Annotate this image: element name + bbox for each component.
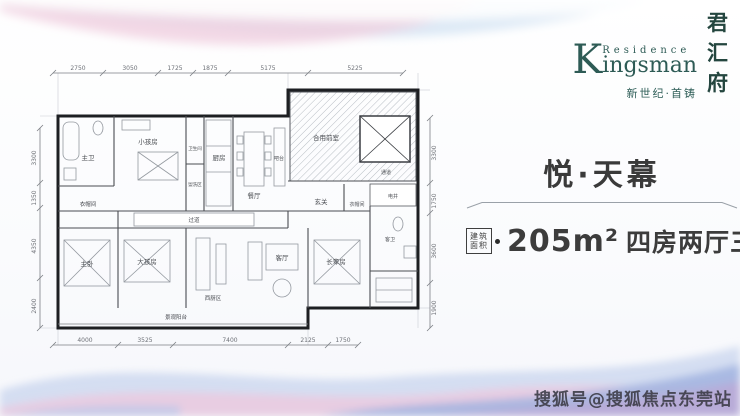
toilet-icon	[93, 121, 103, 135]
area-badge-line2: 面积	[470, 241, 488, 250]
rug-icon	[273, 279, 291, 297]
rooms-description: 四房两厅三卫	[626, 223, 740, 259]
room-label-kids-room: 小孩房	[138, 137, 158, 146]
brand-logo: K Residence ingsman 新世纪·首铸 君 汇 府	[572, 8, 728, 101]
brand-kanji-2: 汇	[707, 42, 728, 63]
dim-left-4: 2400	[31, 298, 38, 313]
dim-top-6: 5225	[347, 65, 362, 72]
brand-kanji-3: 府	[707, 72, 728, 93]
room-label-kitchen: 厨房	[213, 153, 226, 162]
room-label-balcony: 景观阳台	[165, 313, 188, 321]
brand-k-letter: K	[572, 44, 602, 76]
room-label-west-kitchen: 西厨区	[205, 295, 222, 302]
dim-bottom-3: 7400	[222, 337, 237, 344]
room-label-guest-bath: 客卫	[385, 236, 395, 243]
dim-top-4: 1875	[202, 65, 217, 72]
service-core	[290, 92, 416, 206]
brand-latin-block: K Residence ingsman 新世纪·首铸	[572, 44, 697, 101]
room-label-foyer: 玄关	[315, 197, 329, 206]
room-label-closet-left: 衣帽间	[80, 200, 97, 208]
dim-bottom-2: 3525	[137, 337, 152, 344]
room-label-elder-room: 长辈房	[326, 257, 346, 266]
room-label-master-bath: 主卫	[82, 153, 96, 162]
room-label-living: 客厅	[276, 253, 290, 262]
brand-kanji-column: 君 汇 府	[707, 12, 728, 101]
dim-bottom-5: 1750	[335, 337, 350, 344]
area-badge: 建筑 面积	[466, 228, 492, 254]
area-row: 建筑 面积 205m² 四房两厅三卫	[466, 223, 738, 259]
dim-right-4: 1900	[431, 300, 438, 315]
dim-bottom-1: 4000	[77, 337, 92, 344]
dim-top-1: 2750	[70, 65, 85, 72]
dim-top-2: 3050	[122, 65, 137, 72]
dim-right-2: 1750	[431, 193, 438, 208]
floor-plan: 2750 3050 1725 1875 5175 5225 4000 3525 …	[26, 56, 456, 366]
room-label-elder-kid: 大孩房	[137, 257, 157, 266]
listing-info: 悦·天幕 建筑 面积 205m² 四房两厅三卫	[466, 158, 738, 259]
room-label-passage: 通道	[381, 169, 391, 176]
brand-ingsman-text: ingsman	[602, 57, 697, 76]
dim-top-5: 5175	[260, 65, 275, 72]
dim-left-3: 4350	[31, 238, 38, 253]
bathtub-icon	[63, 122, 79, 160]
brand-tagline: 新世纪·首铸	[572, 85, 697, 101]
dim-left-1: 3300	[31, 150, 38, 165]
dim-bottom-4: 2125	[300, 337, 315, 344]
area-badge-line1: 建筑	[470, 232, 488, 241]
dim-right-3: 3600	[431, 243, 438, 258]
area-value: 205m²	[507, 224, 619, 259]
room-label-dining: 餐厅	[248, 191, 262, 200]
unit-title: 悦·天幕	[466, 158, 738, 194]
badge-dot	[495, 239, 500, 244]
title-divider	[466, 201, 738, 211]
room-label-closet-right: 衣帽间	[349, 201, 364, 208]
room-label-bar: 吧台	[274, 155, 284, 162]
dining-table-icon	[244, 132, 264, 186]
room-label-toilet: 卫生间	[188, 145, 202, 152]
dim-right-1: 3300	[431, 145, 438, 160]
dim-left-2: 1350	[31, 190, 38, 205]
room-label-corridor: 过道	[188, 216, 200, 224]
watermark-text: 搜狐号@搜狐焦点东莞站	[534, 385, 732, 410]
brand-kanji-1: 君	[707, 12, 728, 33]
room-label-shared-lobby: 合用前室	[313, 133, 340, 142]
room-label-shaft: 电井	[388, 193, 398, 200]
room-label-master-bed: 主卧	[81, 259, 95, 268]
dim-top-3: 1725	[167, 65, 182, 72]
room-label-wash: 盥洗区	[188, 181, 202, 188]
